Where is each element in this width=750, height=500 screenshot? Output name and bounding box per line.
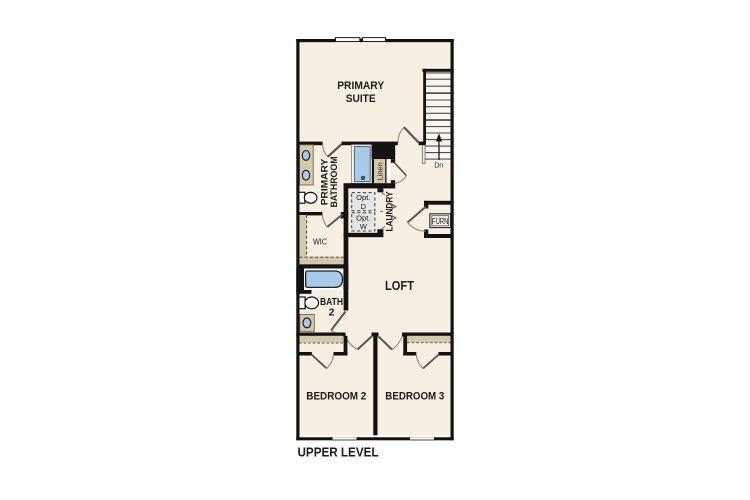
svg-text:LAUNDRY: LAUNDRY [384,191,395,232]
svg-text:BEDROOM 3: BEDROOM 3 [385,391,444,403]
svg-text:PRIMARY: PRIMARY [320,159,330,206]
svg-text:SUITE: SUITE [346,93,376,105]
svg-text:PRIMARY: PRIMARY [337,80,385,92]
svg-text:D: D [361,202,367,211]
svg-text:2: 2 [329,307,335,319]
svg-text:BEDROOM 2: BEDROOM 2 [306,391,366,403]
svg-text:Linen: Linen [376,162,385,180]
svg-text:WIC: WIC [313,237,327,247]
svg-text:BATHROOM: BATHROOM [329,157,339,208]
svg-text:UPPER LEVEL: UPPER LEVEL [298,445,379,460]
svg-text:Dn: Dn [434,163,443,170]
svg-text:W: W [360,222,368,231]
svg-text:FURN: FURN [432,217,449,226]
svg-text:LOFT: LOFT [385,279,414,293]
